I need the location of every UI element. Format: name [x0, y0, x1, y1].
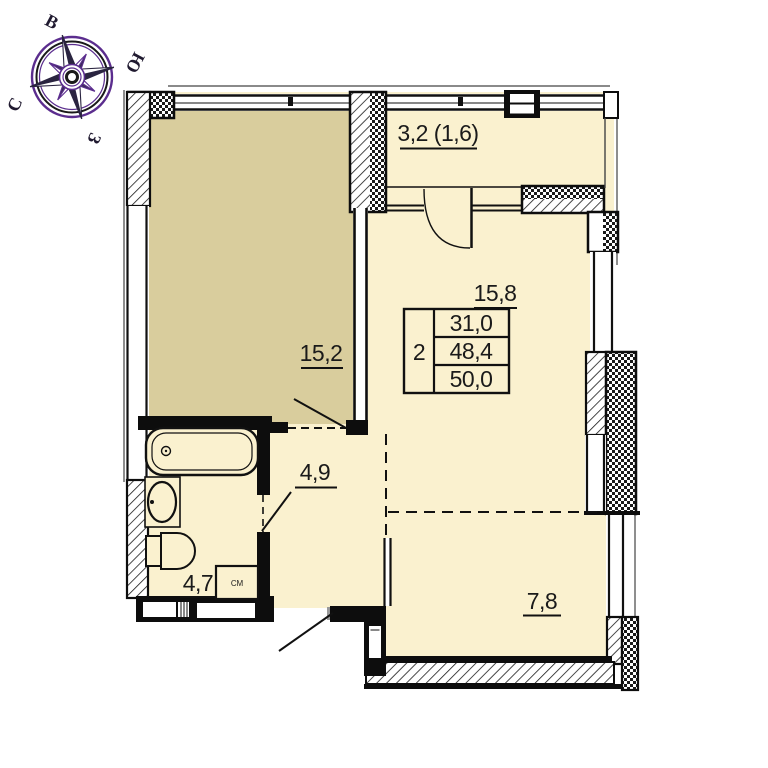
room-label-living: 15,8: [474, 280, 517, 306]
room-label-bedroom: 15,2: [300, 340, 343, 366]
right-window-lower: [606, 515, 634, 617]
window-mullion: [458, 97, 463, 106]
sink-tap: [150, 500, 154, 504]
bedroom-balcony-pier: [350, 92, 386, 212]
room-label-bath: 4,7: [183, 570, 213, 596]
wall-checker: [622, 617, 638, 690]
compass-letter-south: Ю: [122, 49, 149, 76]
room-label-kitchen: 7,8: [527, 588, 557, 614]
compass-letter-east: В: [42, 10, 62, 33]
room-label-balcony: 3,2 (1,6): [397, 120, 478, 146]
table-total-area: 50,0: [450, 366, 493, 392]
washing-machine: СМ: [216, 566, 258, 599]
bathtub: [146, 428, 258, 475]
wall-hatched-block: [522, 186, 604, 213]
wall-hatched: [586, 352, 608, 435]
floor-plan-drawing: СМ 3,2 (1,6) 15,2 15,8 4,9 4,7 7,8 2 31,…: [0, 0, 768, 768]
wall-pier-black: [504, 90, 540, 118]
kitchen-floor: [386, 600, 614, 662]
bedroom-floor: [148, 111, 355, 424]
window-end-frame: [604, 92, 618, 118]
wall-hatched: [127, 92, 150, 206]
toilet: [146, 533, 195, 569]
entrance-door-leaf: [279, 613, 333, 651]
right-pier: [588, 212, 618, 252]
compass-letter-west: З: [83, 130, 105, 148]
compass-letter-north: С: [3, 94, 27, 114]
floor-plan-page: СМ 3,2 (1,6) 15,2 15,8 4,9 4,7 7,8 2 31,…: [0, 0, 768, 768]
table-living-area: 31,0: [450, 310, 493, 336]
table-area-2: 48,4: [450, 338, 493, 364]
wall-checker: [606, 352, 636, 514]
table-rooms-count: 2: [413, 339, 425, 365]
washing-machine-label: СМ: [231, 579, 244, 588]
room-label-hall: 4,9: [300, 459, 330, 485]
sink: [145, 477, 180, 527]
bottom-exterior-wall: [364, 656, 622, 689]
window-mullion: [288, 97, 293, 106]
right-window-niche: [585, 435, 606, 512]
area-table: 2 31,0 48,4 50,0: [404, 309, 509, 393]
